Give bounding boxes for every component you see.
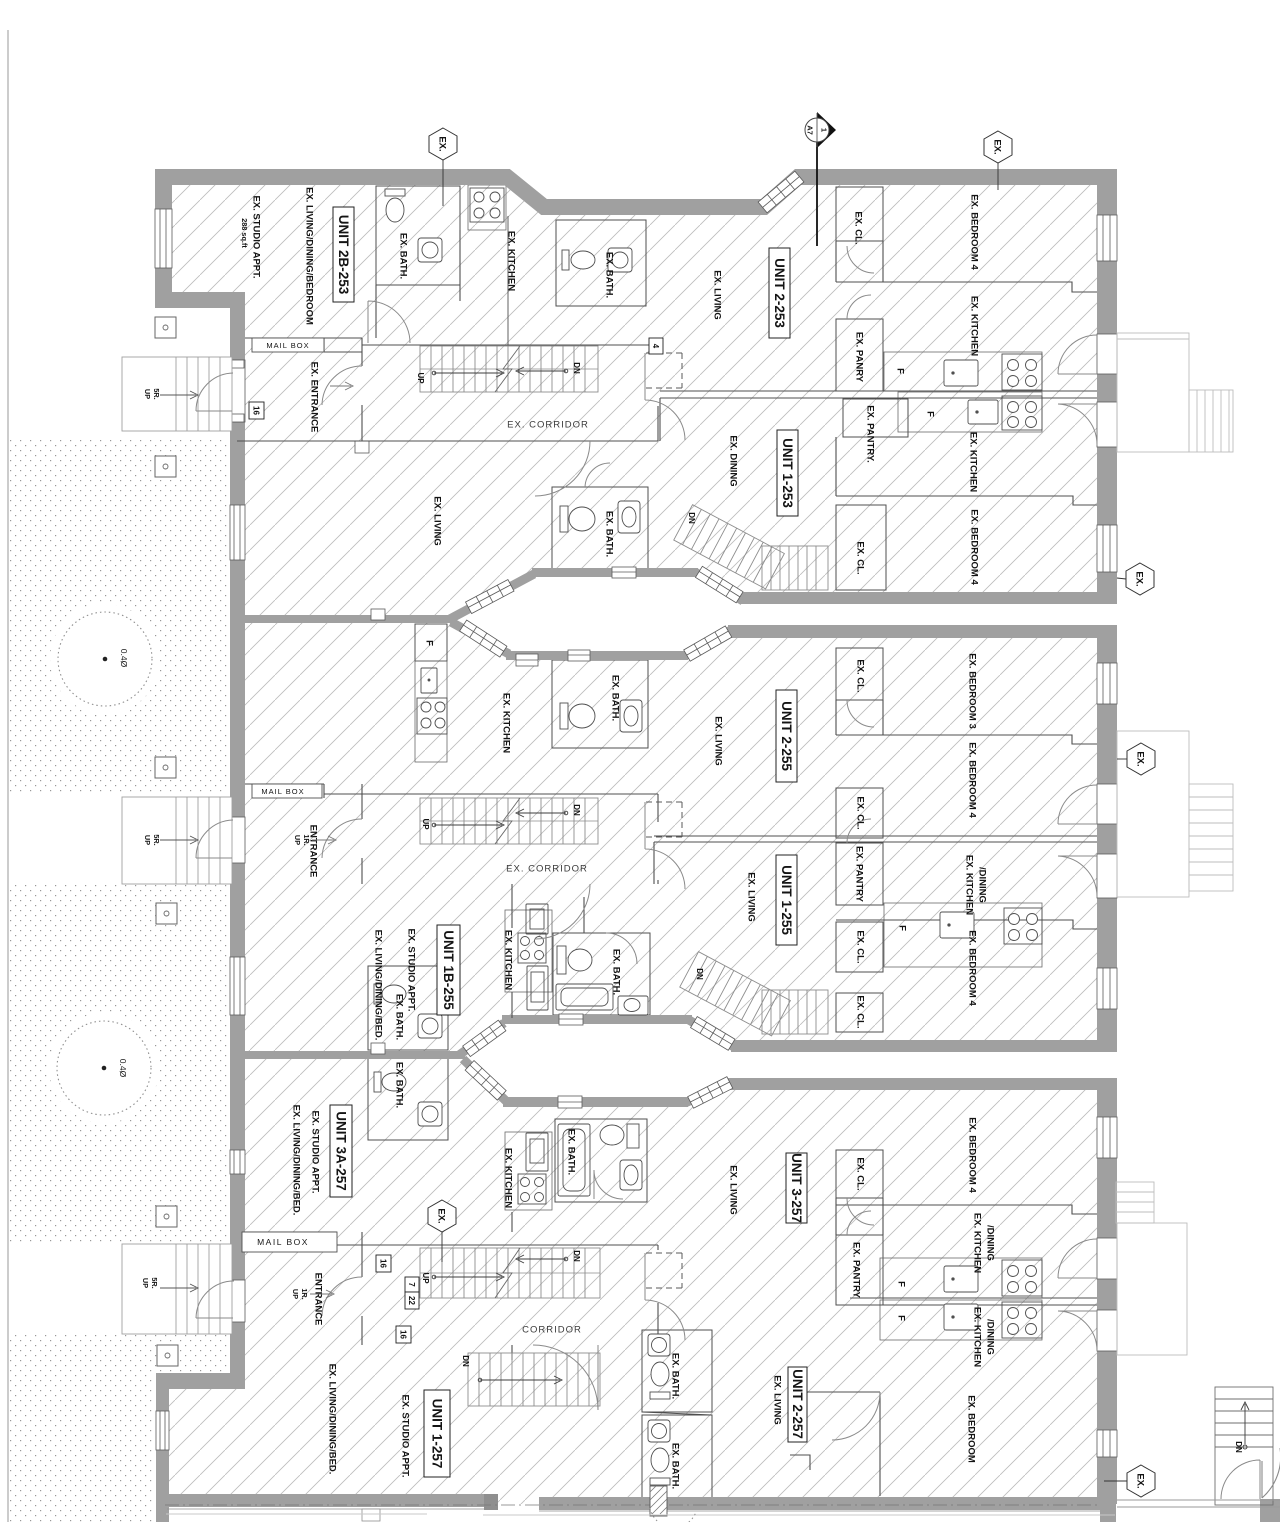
svg-text:EX. CL.: EX. CL. [855, 1157, 866, 1190]
svg-text:EX. BATH.: EX. BATH. [670, 1443, 681, 1489]
svg-text:ENTRANCE: ENTRANCE [313, 1273, 324, 1326]
svg-text:EX. CL.: EX. CL. [855, 930, 866, 963]
svg-text:EX. KITCHEN: EX. KITCHEN [972, 1213, 983, 1273]
svg-text:EX. LIVING/DINING/BED.: EX. LIVING/DINING/BED. [291, 1105, 302, 1216]
svg-text:EX. STUDIO APPT.: EX. STUDIO APPT. [310, 1110, 321, 1193]
svg-text:EX. BATH.: EX. BATH. [604, 511, 615, 557]
svg-text:EX. PANTRY: EX. PANTRY [851, 1242, 862, 1299]
svg-text:EX. BATH.: EX. BATH. [398, 233, 409, 279]
svg-text:UP: UP [143, 389, 152, 399]
svg-text:MAIL BOX: MAIL BOX [261, 787, 304, 796]
svg-text:EX. BATH.: EX. BATH. [566, 1129, 577, 1175]
svg-text:UP: UP [421, 1272, 430, 1284]
svg-text:UNIT 1-253: UNIT 1-253 [780, 438, 795, 508]
svg-text:288 sq.ft: 288 sq.ft [240, 218, 249, 248]
svg-text:ENTRANCE: ENTRANCE [308, 825, 319, 878]
svg-text:UNIT 2B-253: UNIT 2B-253 [336, 215, 351, 295]
svg-text:UP: UP [421, 818, 430, 830]
svg-text:EX.: EX. [437, 136, 448, 151]
svg-text:EX. LIVING: EX. LIVING [432, 496, 443, 546]
svg-text:EX. PANRY: EX. PANRY [854, 332, 865, 383]
svg-text:DN: DN [572, 362, 581, 374]
svg-text:EX.: EX. [1134, 571, 1145, 586]
svg-text:UNIT 1B-255: UNIT 1B-255 [441, 930, 456, 1010]
svg-text:/DINING: /DINING [977, 867, 988, 903]
svg-text:UNIT 1-255: UNIT 1-255 [779, 865, 794, 935]
svg-text:DN: DN [572, 1250, 581, 1262]
svg-text:EX. KITCHEN: EX. KITCHEN [501, 693, 512, 753]
svg-text:F: F [896, 1281, 907, 1287]
svg-text:EX. LIVING/DINING/BED.: EX. LIVING/DINING/BED. [327, 1364, 338, 1475]
svg-text:EX. PANTRY: EX. PANTRY [854, 846, 865, 903]
svg-text:EX. LIVING/DINING/BEDROOM: EX. LIVING/DINING/BEDROOM [304, 187, 315, 325]
svg-text:5R.: 5R. [152, 388, 161, 399]
svg-text:UNIT 2-257: UNIT 2-257 [790, 1369, 805, 1439]
svg-text:EX. BATH.: EX. BATH. [394, 1062, 405, 1108]
svg-text:EX. DINING: EX. DINING [728, 435, 739, 486]
svg-text:0.4Ø: 0.4Ø [118, 1059, 128, 1078]
svg-text:/DINING: /DINING [985, 1319, 996, 1355]
svg-text:F: F [424, 640, 435, 646]
svg-text:5R.: 5R. [152, 834, 161, 845]
svg-text:EX. LIVING: EX. LIVING [713, 716, 724, 766]
svg-text:EX. STUDIO APPT.: EX. STUDIO APPT. [406, 928, 417, 1011]
svg-text:16: 16 [252, 406, 261, 415]
svg-text:EX. KITCHEN: EX. KITCHEN [964, 855, 975, 915]
svg-text:UNIT 2-253: UNIT 2-253 [772, 258, 787, 328]
svg-text:EX. CL.: EX. CL. [855, 796, 866, 829]
svg-text:DN: DN [461, 1355, 470, 1367]
svg-text:EX. STUDIO APPT.: EX. STUDIO APPT. [251, 195, 262, 278]
svg-text:16: 16 [399, 1330, 408, 1339]
svg-text:16: 16 [379, 1259, 388, 1268]
svg-text:DN: DN [695, 968, 704, 980]
svg-text:EX. LIVING: EX. LIVING [712, 270, 723, 320]
svg-text:UP: UP [291, 1289, 300, 1299]
svg-text:5R.: 5R. [150, 1277, 159, 1288]
svg-text:EX. BATH.: EX. BATH. [610, 675, 621, 721]
svg-text:1R.: 1R. [300, 1288, 309, 1299]
svg-text:EX. BEDROOM 4: EX. BEDROOM 4 [967, 1117, 978, 1193]
svg-text:EX. BATH.: EX. BATH. [394, 994, 405, 1040]
svg-text:22: 22 [407, 1296, 416, 1305]
svg-text:EX. ENTRANCE: EX. ENTRANCE [309, 362, 320, 433]
svg-text:EX. KITCHEN: EX. KITCHEN [968, 432, 979, 492]
svg-text:EX. BATH.: EX. BATH. [611, 949, 622, 995]
svg-text:EX. LIVING: EX. LIVING [772, 1375, 783, 1425]
svg-text:UP: UP [143, 835, 152, 845]
svg-text:MAIL BOX: MAIL BOX [257, 1237, 309, 1247]
svg-text:EX. CORRIDOR: EX. CORRIDOR [507, 420, 589, 431]
svg-text:F: F [896, 1315, 907, 1321]
svg-text:EX. BEDROOM 4: EX. BEDROOM 4 [967, 930, 978, 1006]
svg-text:EX. LIVING/DINING/BED.: EX. LIVING/DINING/BED. [373, 930, 384, 1041]
svg-text:4: 4 [651, 344, 660, 349]
svg-text:1R.: 1R. [302, 834, 311, 845]
svg-text:DN: DN [1234, 1441, 1243, 1453]
svg-text:EX. KITCHEN: EX. KITCHEN [972, 1307, 983, 1367]
svg-text:UP: UP [141, 1278, 150, 1288]
svg-text:F: F [925, 411, 936, 417]
svg-text:EX. BEDROOM 4: EX. BEDROOM 4 [969, 194, 980, 270]
svg-text:EX. PANTRY.: EX. PANTRY. [865, 405, 876, 463]
svg-text:1: 1 [820, 128, 829, 132]
svg-text:EX. CORRIDOR: EX. CORRIDOR [506, 864, 588, 875]
svg-text:EX. CL.: EX. CL. [855, 659, 866, 692]
svg-text:EX. CL.: EX. CL. [855, 995, 866, 1028]
svg-text:EX.: EX. [436, 1208, 447, 1223]
svg-text:EX. KITCHEN: EX. KITCHEN [969, 296, 980, 356]
svg-text:A7: A7 [806, 125, 815, 135]
svg-text:UNIT 3A-257: UNIT 3A-257 [334, 1111, 349, 1191]
svg-text:UNIT 2-255: UNIT 2-255 [779, 701, 794, 771]
svg-text:EX. BATH.: EX. BATH. [604, 252, 615, 298]
svg-text:EX.: EX. [992, 139, 1003, 154]
svg-text:UP: UP [293, 835, 302, 845]
svg-text:EX. STUDIO APPT.: EX. STUDIO APPT. [400, 1394, 411, 1477]
svg-text:UP: UP [416, 372, 425, 384]
svg-text:EX.: EX. [1135, 1473, 1146, 1488]
svg-text:EX. KITCHEN: EX. KITCHEN [506, 231, 517, 291]
svg-text:DN: DN [687, 512, 696, 524]
svg-text:EX. BEDROOM 4: EX. BEDROOM 4 [969, 509, 980, 585]
svg-text:EX. CL.: EX. CL. [855, 541, 866, 574]
svg-text:DN: DN [572, 804, 581, 816]
svg-text:CORRIDOR: CORRIDOR [522, 1325, 582, 1336]
svg-text:F: F [897, 925, 908, 931]
svg-text:EX. KITCHEN: EX. KITCHEN [503, 1148, 514, 1208]
svg-text:EX.: EX. [1135, 751, 1146, 766]
svg-text:UNIT 1-257: UNIT 1-257 [430, 1399, 445, 1469]
svg-text:EX. BEDROOM: EX. BEDROOM [966, 1395, 977, 1463]
svg-text:EX. BEDROOM 3: EX. BEDROOM 3 [967, 653, 978, 729]
svg-text:F: F [895, 368, 906, 374]
svg-text:EX. BEDROOM 4: EX. BEDROOM 4 [967, 742, 978, 818]
svg-text:/DINING: /DINING [985, 1225, 996, 1261]
svg-text:EX. BATH.: EX. BATH. [670, 1353, 681, 1399]
svg-text:EX. LIVING: EX. LIVING [728, 1165, 739, 1215]
svg-text:7: 7 [407, 1282, 416, 1287]
svg-text:MAIL BOX: MAIL BOX [266, 341, 309, 350]
svg-text:0.4Ø: 0.4Ø [119, 649, 129, 668]
svg-text:EX. KITCHEN: EX. KITCHEN [503, 930, 514, 990]
svg-text:EX. LIVING: EX. LIVING [746, 872, 757, 922]
svg-text:EX. CL.: EX. CL. [853, 211, 864, 244]
svg-text:UNIT 3-257: UNIT 3-257 [789, 1153, 804, 1223]
